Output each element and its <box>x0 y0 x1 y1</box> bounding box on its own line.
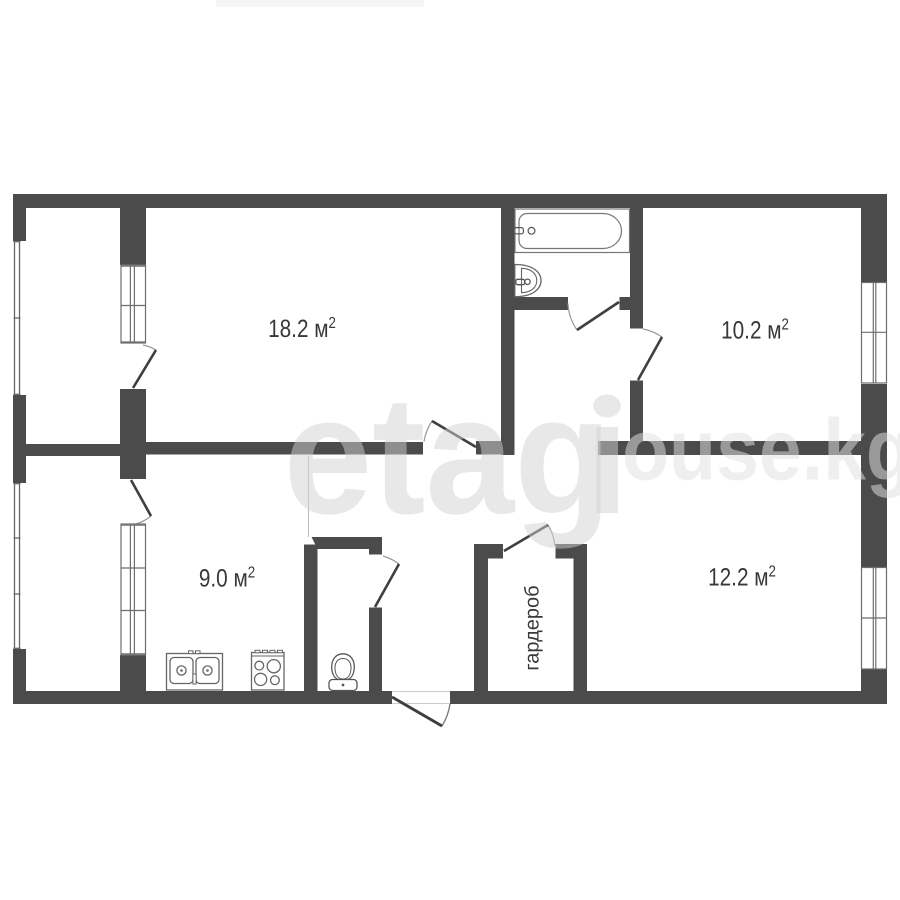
svg-text:10.2 м2: 10.2 м2 <box>721 317 789 345</box>
svg-text:18.2 м2: 18.2 м2 <box>268 315 336 343</box>
svg-text:etag: etag <box>284 361 612 549</box>
svg-text:ouse.kg: ouse.kg <box>622 402 900 499</box>
svg-text:12.2 м2: 12.2 м2 <box>708 564 776 592</box>
svg-text:9.0 м2: 9.0 м2 <box>199 565 255 593</box>
svg-text:гардероб: гардероб <box>521 585 543 670</box>
